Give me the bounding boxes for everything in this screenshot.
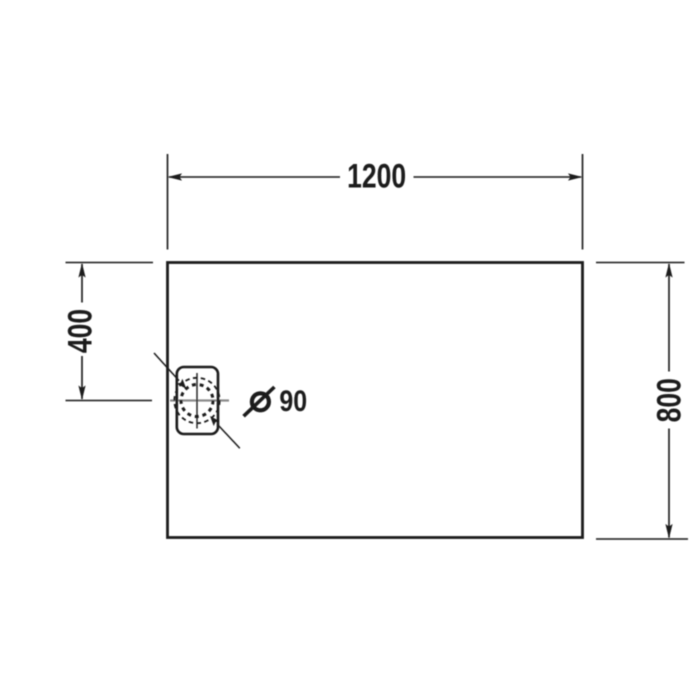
- svg-text:800: 800: [650, 378, 688, 422]
- svg-text:400: 400: [61, 309, 99, 353]
- svg-text:90: 90: [279, 384, 307, 418]
- svg-text:1200: 1200: [347, 157, 406, 195]
